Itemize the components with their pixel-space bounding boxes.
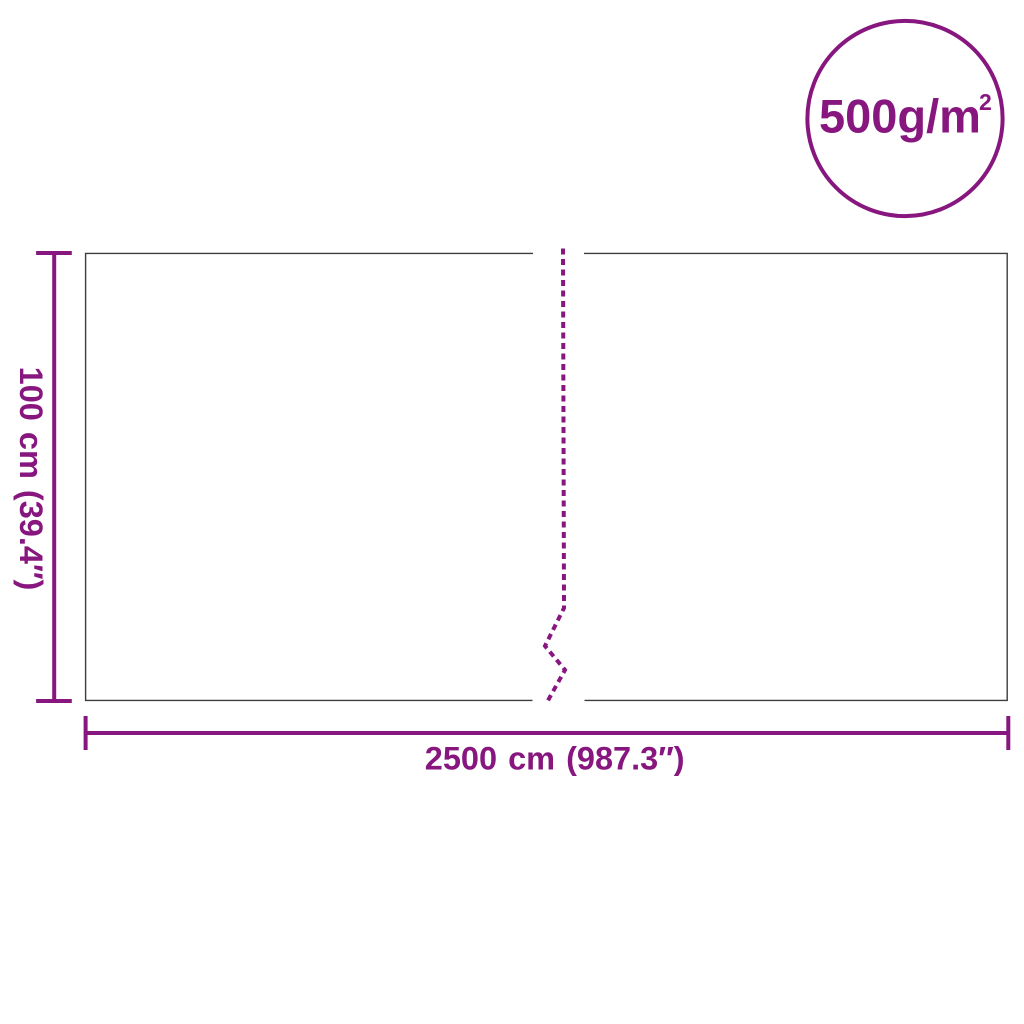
svg-text:500g/m: 500g/m [819,90,981,143]
svg-text:2: 2 [979,89,992,115]
svg-text:100 cm (39.4″): 100 cm (39.4″) [13,367,49,591]
svg-text:2500 cm (987.3″): 2500 cm (987.3″) [425,741,685,777]
